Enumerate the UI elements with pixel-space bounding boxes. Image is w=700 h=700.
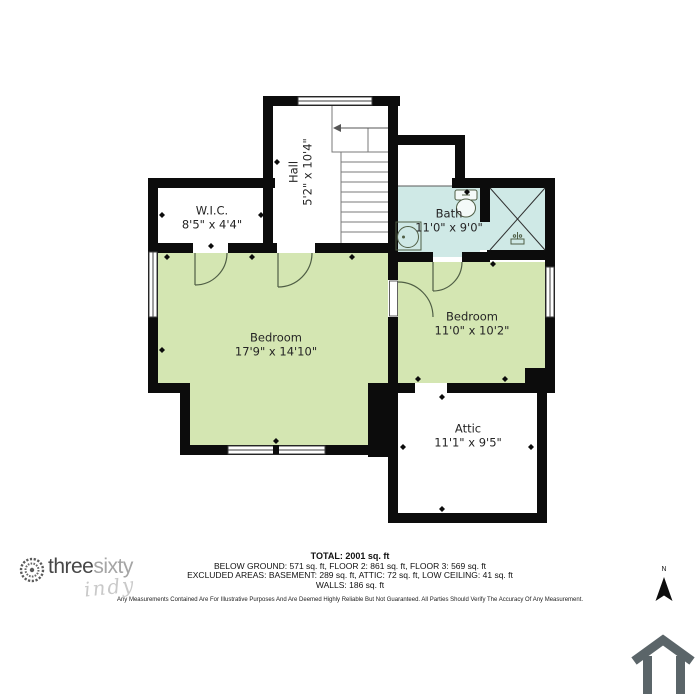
room-name: Bedroom bbox=[235, 332, 317, 346]
room-name: Hall bbox=[288, 138, 302, 206]
room-name: Bedroom bbox=[435, 311, 510, 325]
room-name: Bath bbox=[415, 208, 483, 222]
north-label: N bbox=[648, 565, 680, 573]
room-label-bath: Bath 11'0" x 9'0" bbox=[415, 208, 483, 235]
room-name: W.I.C. bbox=[182, 205, 242, 219]
mandala-icon bbox=[18, 556, 46, 584]
room-dims: 17'9" x 14'10" bbox=[235, 345, 317, 359]
room-label-bedroom-1: Bedroom 17'9" x 14'10" bbox=[235, 332, 317, 359]
window-bedroom1-bottom bbox=[228, 445, 325, 454]
window-bedroom1-left bbox=[149, 252, 157, 317]
room-dims: 11'0" x 9'0" bbox=[415, 221, 483, 235]
north-arrow-icon bbox=[648, 573, 680, 605]
brand-script: indy bbox=[83, 572, 137, 601]
room-name: Attic bbox=[434, 423, 502, 437]
room-dims: 11'1" x 9'5" bbox=[434, 436, 502, 450]
window-bedroom2-right bbox=[546, 267, 554, 317]
room-dims: 11'0" x 10'2" bbox=[435, 324, 510, 338]
north-compass: N bbox=[648, 565, 680, 610]
house-icon bbox=[626, 630, 700, 700]
stairs-direction-arrow bbox=[333, 124, 388, 132]
room-label-hall: Hall 5'2" x 10'4" bbox=[288, 138, 315, 206]
room-dims: 5'2" x 10'4" bbox=[301, 138, 315, 206]
room-label-attic: Attic 11'1" x 9'5" bbox=[434, 423, 502, 450]
brand-part1: three bbox=[48, 555, 93, 578]
floorplan-canvas: W.I.C. 8'5" x 4'4" Hall 5'2" x 10'4" Bat… bbox=[0, 0, 700, 700]
room-dims: 8'5" x 4'4" bbox=[182, 218, 242, 232]
room-label-wic: W.I.C. 8'5" x 4'4" bbox=[182, 205, 242, 232]
window-hall-top bbox=[298, 97, 372, 105]
room-label-bedroom-2: Bedroom 11'0" x 10'2" bbox=[435, 311, 510, 338]
stairs-icon bbox=[332, 106, 388, 243]
brand-logo: threesixty indy bbox=[18, 553, 188, 608]
